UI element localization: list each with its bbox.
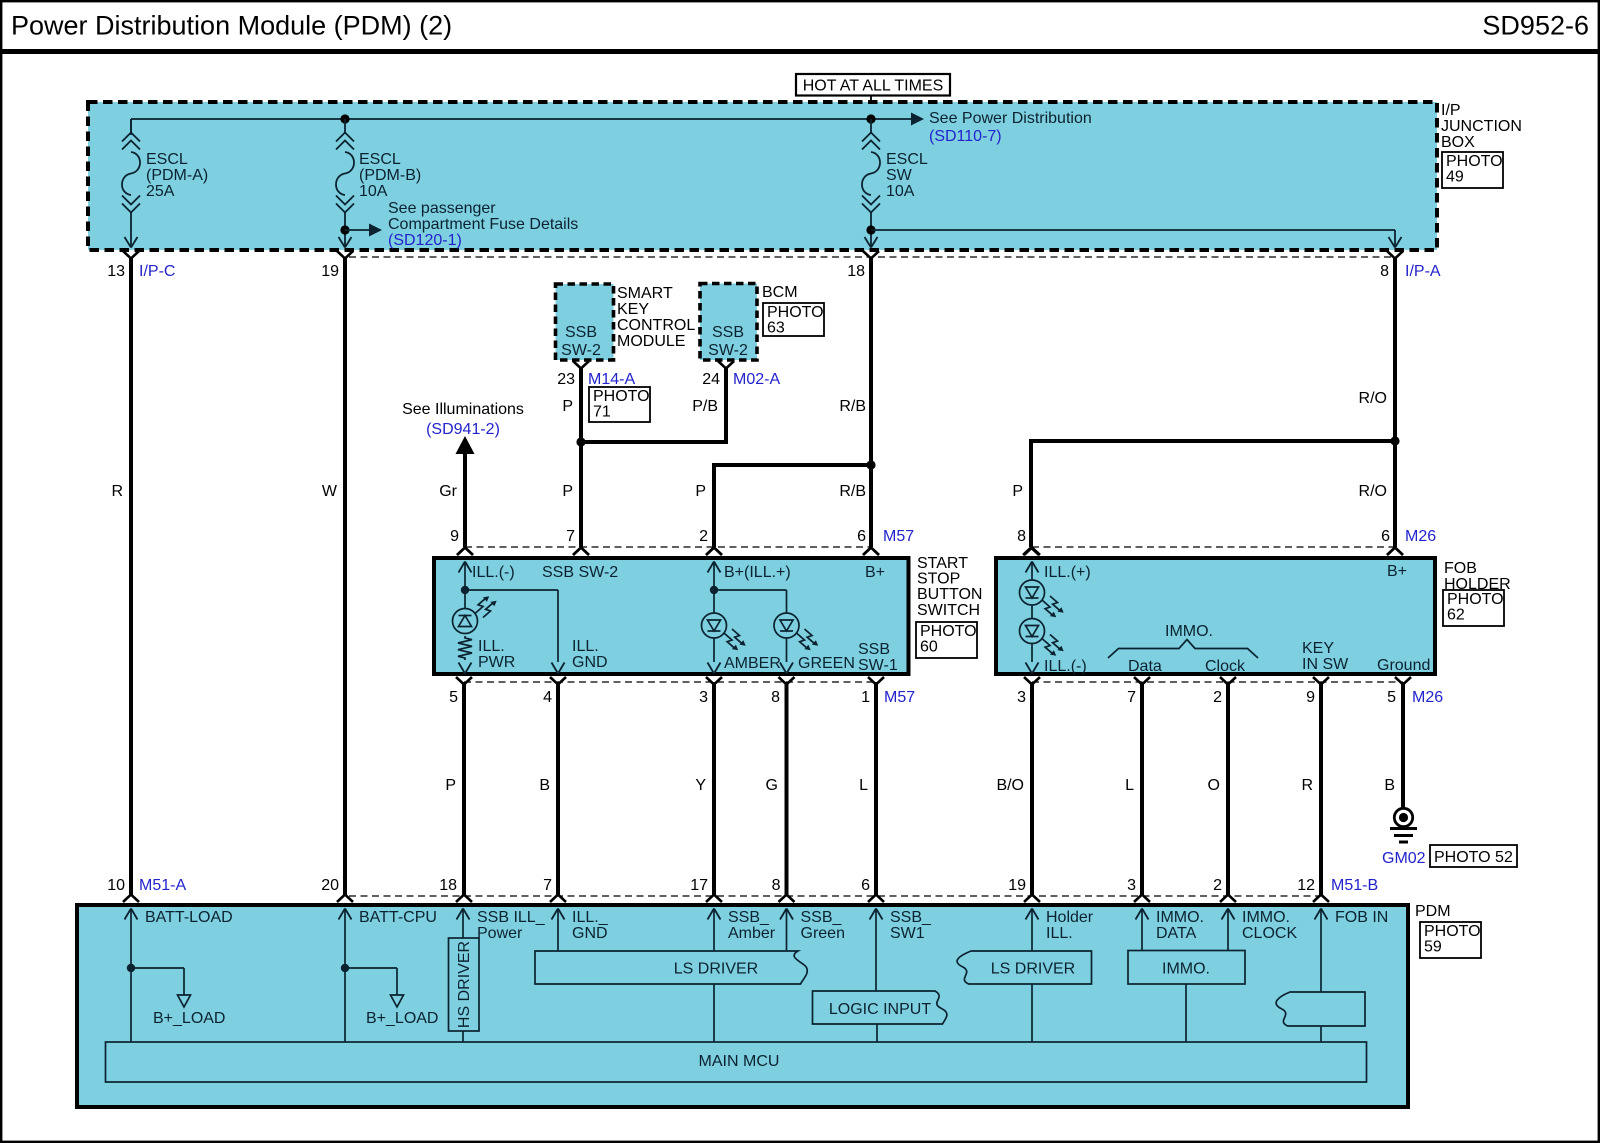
svg-text:BATT-CPU: BATT-CPU	[359, 909, 437, 926]
svg-text:PHOTO: PHOTO	[1447, 591, 1504, 608]
svg-text:LS DRIVER: LS DRIVER	[674, 961, 758, 978]
svg-text:2: 2	[699, 528, 708, 545]
svg-text:63: 63	[767, 320, 785, 337]
svg-text:SD952-6: SD952-6	[1482, 11, 1589, 41]
svg-text:B+_LOAD: B+_LOAD	[153, 1010, 225, 1027]
svg-text:BOX: BOX	[1441, 134, 1475, 151]
svg-text:ESCL: ESCL	[886, 151, 928, 168]
svg-text:GREEN: GREEN	[798, 655, 855, 672]
svg-text:17: 17	[690, 877, 708, 894]
svg-text:IMMO.: IMMO.	[1162, 961, 1210, 978]
svg-text:B+: B+	[865, 564, 885, 581]
svg-text:LS DRIVER: LS DRIVER	[991, 961, 1075, 978]
svg-text:60: 60	[920, 639, 938, 656]
svg-text:R/O: R/O	[1359, 390, 1387, 407]
svg-text:SW1: SW1	[890, 925, 925, 942]
svg-text:10: 10	[107, 877, 125, 894]
svg-text:KEY: KEY	[1302, 640, 1334, 657]
svg-text:M26: M26	[1412, 689, 1443, 706]
svg-text:18: 18	[439, 877, 457, 894]
svg-text:P/B: P/B	[692, 398, 718, 415]
svg-text:Amber: Amber	[728, 925, 776, 942]
svg-text:B: B	[1384, 777, 1395, 794]
svg-text:L: L	[1125, 777, 1134, 794]
svg-text:19: 19	[1008, 877, 1026, 894]
svg-text:P: P	[562, 398, 573, 415]
svg-text:2: 2	[1213, 877, 1222, 894]
svg-text:SSB_: SSB_	[728, 909, 770, 926]
svg-text:LOGIC INPUT: LOGIC INPUT	[829, 1001, 931, 1018]
svg-text:8: 8	[772, 877, 781, 894]
svg-text:ILL.(+): ILL.(+)	[1044, 564, 1091, 581]
svg-text:CONTROL: CONTROL	[617, 317, 695, 334]
svg-text:BUTTON: BUTTON	[917, 586, 982, 603]
svg-text:23: 23	[557, 371, 575, 388]
svg-text:ILL.: ILL.	[478, 638, 505, 655]
svg-text:Compartment Fuse Details: Compartment Fuse Details	[388, 216, 578, 233]
svg-text:IMMO.: IMMO.	[1242, 909, 1290, 926]
svg-text:MODULE: MODULE	[617, 333, 685, 350]
svg-text:71: 71	[593, 404, 611, 421]
svg-text:W: W	[322, 483, 338, 500]
svg-text:B+: B+	[1387, 563, 1407, 580]
svg-text:Clock: Clock	[1205, 658, 1246, 675]
svg-text:AMBER: AMBER	[724, 655, 781, 672]
svg-text:M14-A: M14-A	[588, 371, 635, 388]
svg-text:R/O: R/O	[1359, 483, 1387, 500]
svg-text:13: 13	[107, 263, 125, 280]
svg-text:P: P	[562, 483, 573, 500]
svg-text:M02-A: M02-A	[733, 371, 780, 388]
svg-text:I/P: I/P	[1441, 102, 1461, 119]
svg-text:Y: Y	[695, 777, 706, 794]
svg-text:7: 7	[566, 528, 575, 545]
svg-text:SW-2: SW-2	[708, 342, 748, 359]
svg-text:M26: M26	[1405, 528, 1436, 545]
svg-text:SW-1: SW-1	[858, 657, 898, 674]
svg-text:(PDM-A): (PDM-A)	[146, 167, 208, 184]
svg-text:7: 7	[1127, 689, 1136, 706]
svg-text:DATA: DATA	[1156, 925, 1197, 942]
svg-text:ILL.: ILL.	[572, 638, 599, 655]
svg-text:I/P-A: I/P-A	[1405, 263, 1441, 280]
svg-text:6: 6	[1381, 528, 1390, 545]
svg-text:B/O: B/O	[996, 777, 1024, 794]
svg-text:I/P-C: I/P-C	[139, 263, 175, 280]
svg-text:SSB_: SSB_	[890, 909, 932, 926]
svg-text:GND: GND	[572, 654, 608, 671]
svg-text:SW-2: SW-2	[561, 342, 601, 359]
svg-text:PWR: PWR	[478, 654, 515, 671]
svg-text:Power: Power	[477, 925, 523, 942]
svg-text:ESCL: ESCL	[146, 151, 188, 168]
svg-text:BCM: BCM	[762, 284, 798, 301]
svg-text:4: 4	[543, 689, 552, 706]
svg-text:FOB: FOB	[1444, 560, 1477, 577]
svg-text:B: B	[539, 777, 550, 794]
svg-text:See Power Distribution: See Power Distribution	[929, 110, 1092, 127]
svg-text:(SD941-2): (SD941-2)	[426, 421, 500, 438]
svg-text:6: 6	[857, 528, 866, 545]
svg-text:P: P	[445, 777, 456, 794]
svg-text:ESCL: ESCL	[359, 151, 401, 168]
svg-text:19: 19	[321, 263, 339, 280]
svg-text:Power Distribution Module (PDM: Power Distribution Module (PDM) (2)	[11, 11, 452, 41]
svg-text:SSB ILL_: SSB ILL_	[477, 909, 546, 926]
svg-text:(SD120-1): (SD120-1)	[388, 232, 462, 249]
svg-text:Ground: Ground	[1377, 657, 1430, 674]
svg-text:Data: Data	[1128, 658, 1162, 675]
svg-text:P: P	[1012, 483, 1023, 500]
svg-text:ILL._: ILL._	[572, 909, 609, 926]
svg-text:18: 18	[847, 263, 865, 280]
svg-text:G: G	[766, 777, 778, 794]
svg-text:9: 9	[1306, 689, 1315, 706]
svg-text:PHOTO: PHOTO	[767, 304, 824, 321]
svg-text:IMMO.: IMMO.	[1165, 623, 1213, 640]
svg-text:SSB: SSB	[858, 641, 890, 658]
svg-text:JUNCTION: JUNCTION	[1441, 118, 1522, 135]
svg-text:R/B: R/B	[839, 398, 866, 415]
svg-text:MAIN MCU: MAIN MCU	[699, 1053, 780, 1070]
svg-text:See passenger: See passenger	[388, 200, 496, 217]
svg-text:ILL.(-): ILL.(-)	[472, 564, 515, 581]
svg-text:Gr: Gr	[439, 483, 457, 500]
svg-text:Green: Green	[801, 925, 845, 942]
svg-text:R/B: R/B	[839, 483, 866, 500]
svg-text:(PDM-B): (PDM-B)	[359, 167, 421, 184]
svg-text:Holder: Holder	[1046, 909, 1094, 926]
svg-text:1: 1	[861, 689, 870, 706]
svg-text:SSB: SSB	[565, 324, 597, 341]
svg-text:SSB SW-2: SSB SW-2	[542, 564, 618, 581]
svg-text:3: 3	[1127, 877, 1136, 894]
svg-text:B+_LOAD: B+_LOAD	[366, 1010, 438, 1027]
svg-text:SSB_: SSB_	[801, 909, 843, 926]
svg-text:6: 6	[861, 877, 870, 894]
svg-text:3: 3	[699, 689, 708, 706]
svg-text:M57: M57	[883, 528, 914, 545]
svg-text:IMMO.: IMMO.	[1156, 909, 1204, 926]
svg-text:(SD110-7): (SD110-7)	[929, 128, 1002, 145]
svg-text:PHOTO: PHOTO	[1424, 923, 1481, 940]
svg-text:BATT-LOAD: BATT-LOAD	[145, 909, 233, 926]
svg-text:STOP: STOP	[917, 571, 960, 588]
svg-text:PHOTO: PHOTO	[1446, 153, 1503, 170]
svg-text:GM02: GM02	[1382, 850, 1426, 867]
svg-text:CLOCK: CLOCK	[1242, 925, 1297, 942]
svg-text:M57: M57	[884, 689, 915, 706]
svg-text:PHOTO 52: PHOTO 52	[1434, 849, 1513, 866]
svg-text:KEY: KEY	[617, 301, 649, 318]
svg-text:SMART: SMART	[617, 285, 673, 302]
svg-text:IN SW: IN SW	[1302, 656, 1349, 673]
svg-text:SWITCH: SWITCH	[917, 602, 980, 619]
svg-text:24: 24	[702, 371, 720, 388]
svg-text:62: 62	[1447, 607, 1465, 624]
svg-text:ILL.: ILL.	[1046, 925, 1073, 942]
svg-text:49: 49	[1446, 169, 1464, 186]
svg-text:See Illuminations: See Illuminations	[402, 401, 524, 418]
svg-text:25A: 25A	[146, 183, 175, 200]
svg-text:START: START	[917, 555, 968, 572]
svg-text:3: 3	[1017, 689, 1026, 706]
svg-text:PDM: PDM	[1415, 903, 1451, 920]
svg-text:5: 5	[1387, 689, 1396, 706]
svg-text:M51-A: M51-A	[139, 877, 186, 894]
svg-text:HS DRIVER: HS DRIVER	[456, 941, 473, 1028]
svg-text:GND: GND	[572, 925, 608, 942]
svg-text:R: R	[1301, 777, 1313, 794]
svg-text:PHOTO: PHOTO	[593, 388, 650, 405]
svg-text:8: 8	[1380, 263, 1389, 280]
svg-text:ILL.(-): ILL.(-)	[1044, 658, 1087, 675]
svg-text:PHOTO: PHOTO	[920, 623, 977, 640]
svg-text:2: 2	[1213, 689, 1222, 706]
svg-text:M51-B: M51-B	[1331, 877, 1378, 894]
svg-text:B+(ILL.+): B+(ILL.+)	[724, 564, 791, 581]
svg-text:5: 5	[449, 689, 458, 706]
svg-text:R: R	[111, 483, 123, 500]
svg-text:FOB IN: FOB IN	[1335, 909, 1388, 926]
svg-text:SSB: SSB	[712, 324, 744, 341]
svg-text:10A: 10A	[359, 183, 388, 200]
svg-text:SW: SW	[886, 167, 913, 184]
svg-text:10A: 10A	[886, 183, 915, 200]
svg-text:20: 20	[321, 877, 339, 894]
svg-text:8: 8	[771, 689, 780, 706]
svg-text:9: 9	[450, 528, 459, 545]
svg-text:HOT AT ALL TIMES: HOT AT ALL TIMES	[803, 78, 944, 95]
svg-text:P: P	[695, 483, 706, 500]
svg-text:8: 8	[1017, 528, 1026, 545]
svg-text:12: 12	[1297, 877, 1315, 894]
svg-text:O: O	[1208, 777, 1220, 794]
svg-text:L: L	[859, 777, 868, 794]
svg-text:59: 59	[1424, 939, 1442, 956]
svg-text:7: 7	[543, 877, 552, 894]
